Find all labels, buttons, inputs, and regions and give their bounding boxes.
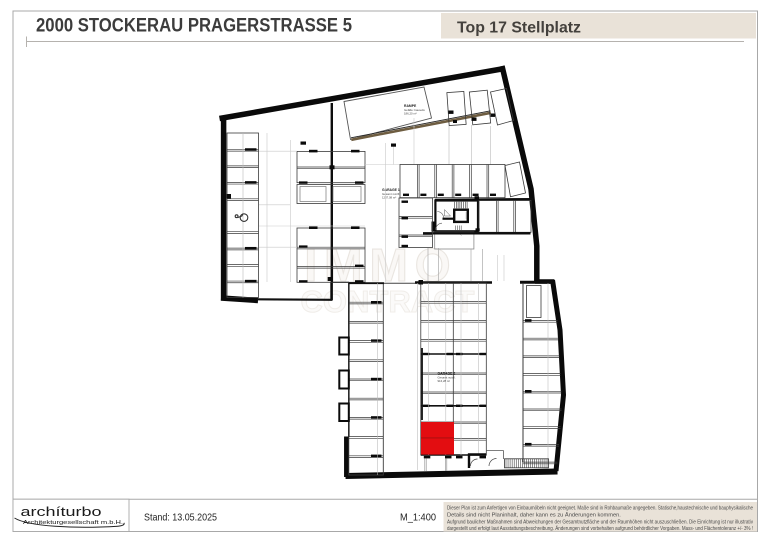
svg-text:archíturbo: archíturbo bbox=[21, 504, 102, 519]
svg-text:1237,08 m²: 1237,08 m² bbox=[382, 196, 396, 200]
svg-text:dargestellt und erfolgt laut A: dargestellt und erfolgt laut Ausstattung… bbox=[447, 525, 753, 532]
svg-text:Dieser Plan ist zum Anfertigen: Dieser Plan ist zum Anfertigen von Einba… bbox=[447, 506, 753, 512]
svg-text:186,20 m²: 186,20 m² bbox=[404, 112, 417, 116]
svg-text:916,28 m²: 916,28 m² bbox=[438, 379, 451, 383]
svg-text:M_1:400: M_1:400 bbox=[400, 512, 436, 524]
svg-text:2000 STOCKERAU PRAGERSTRASSE 5: 2000 STOCKERAU PRAGERSTRASSE 5 bbox=[36, 16, 352, 37]
svg-text:Aufgrund baulicher Maßnahmen s: Aufgrund baulicher Maßnahmen sind Abweic… bbox=[447, 520, 753, 526]
svg-text:Stand: 13.05.2025: Stand: 13.05.2025 bbox=[144, 512, 217, 524]
svg-text:Architekturgesellschaft m.b.H.: Architekturgesellschaft m.b.H. bbox=[23, 520, 124, 526]
svg-text:Details sind nicht Planinhalt,: Details sind nicht Planinhalt, daher kan… bbox=[447, 512, 621, 519]
svg-text:Top 17 Stellplatz: Top 17 Stellplatz bbox=[457, 20, 581, 37]
